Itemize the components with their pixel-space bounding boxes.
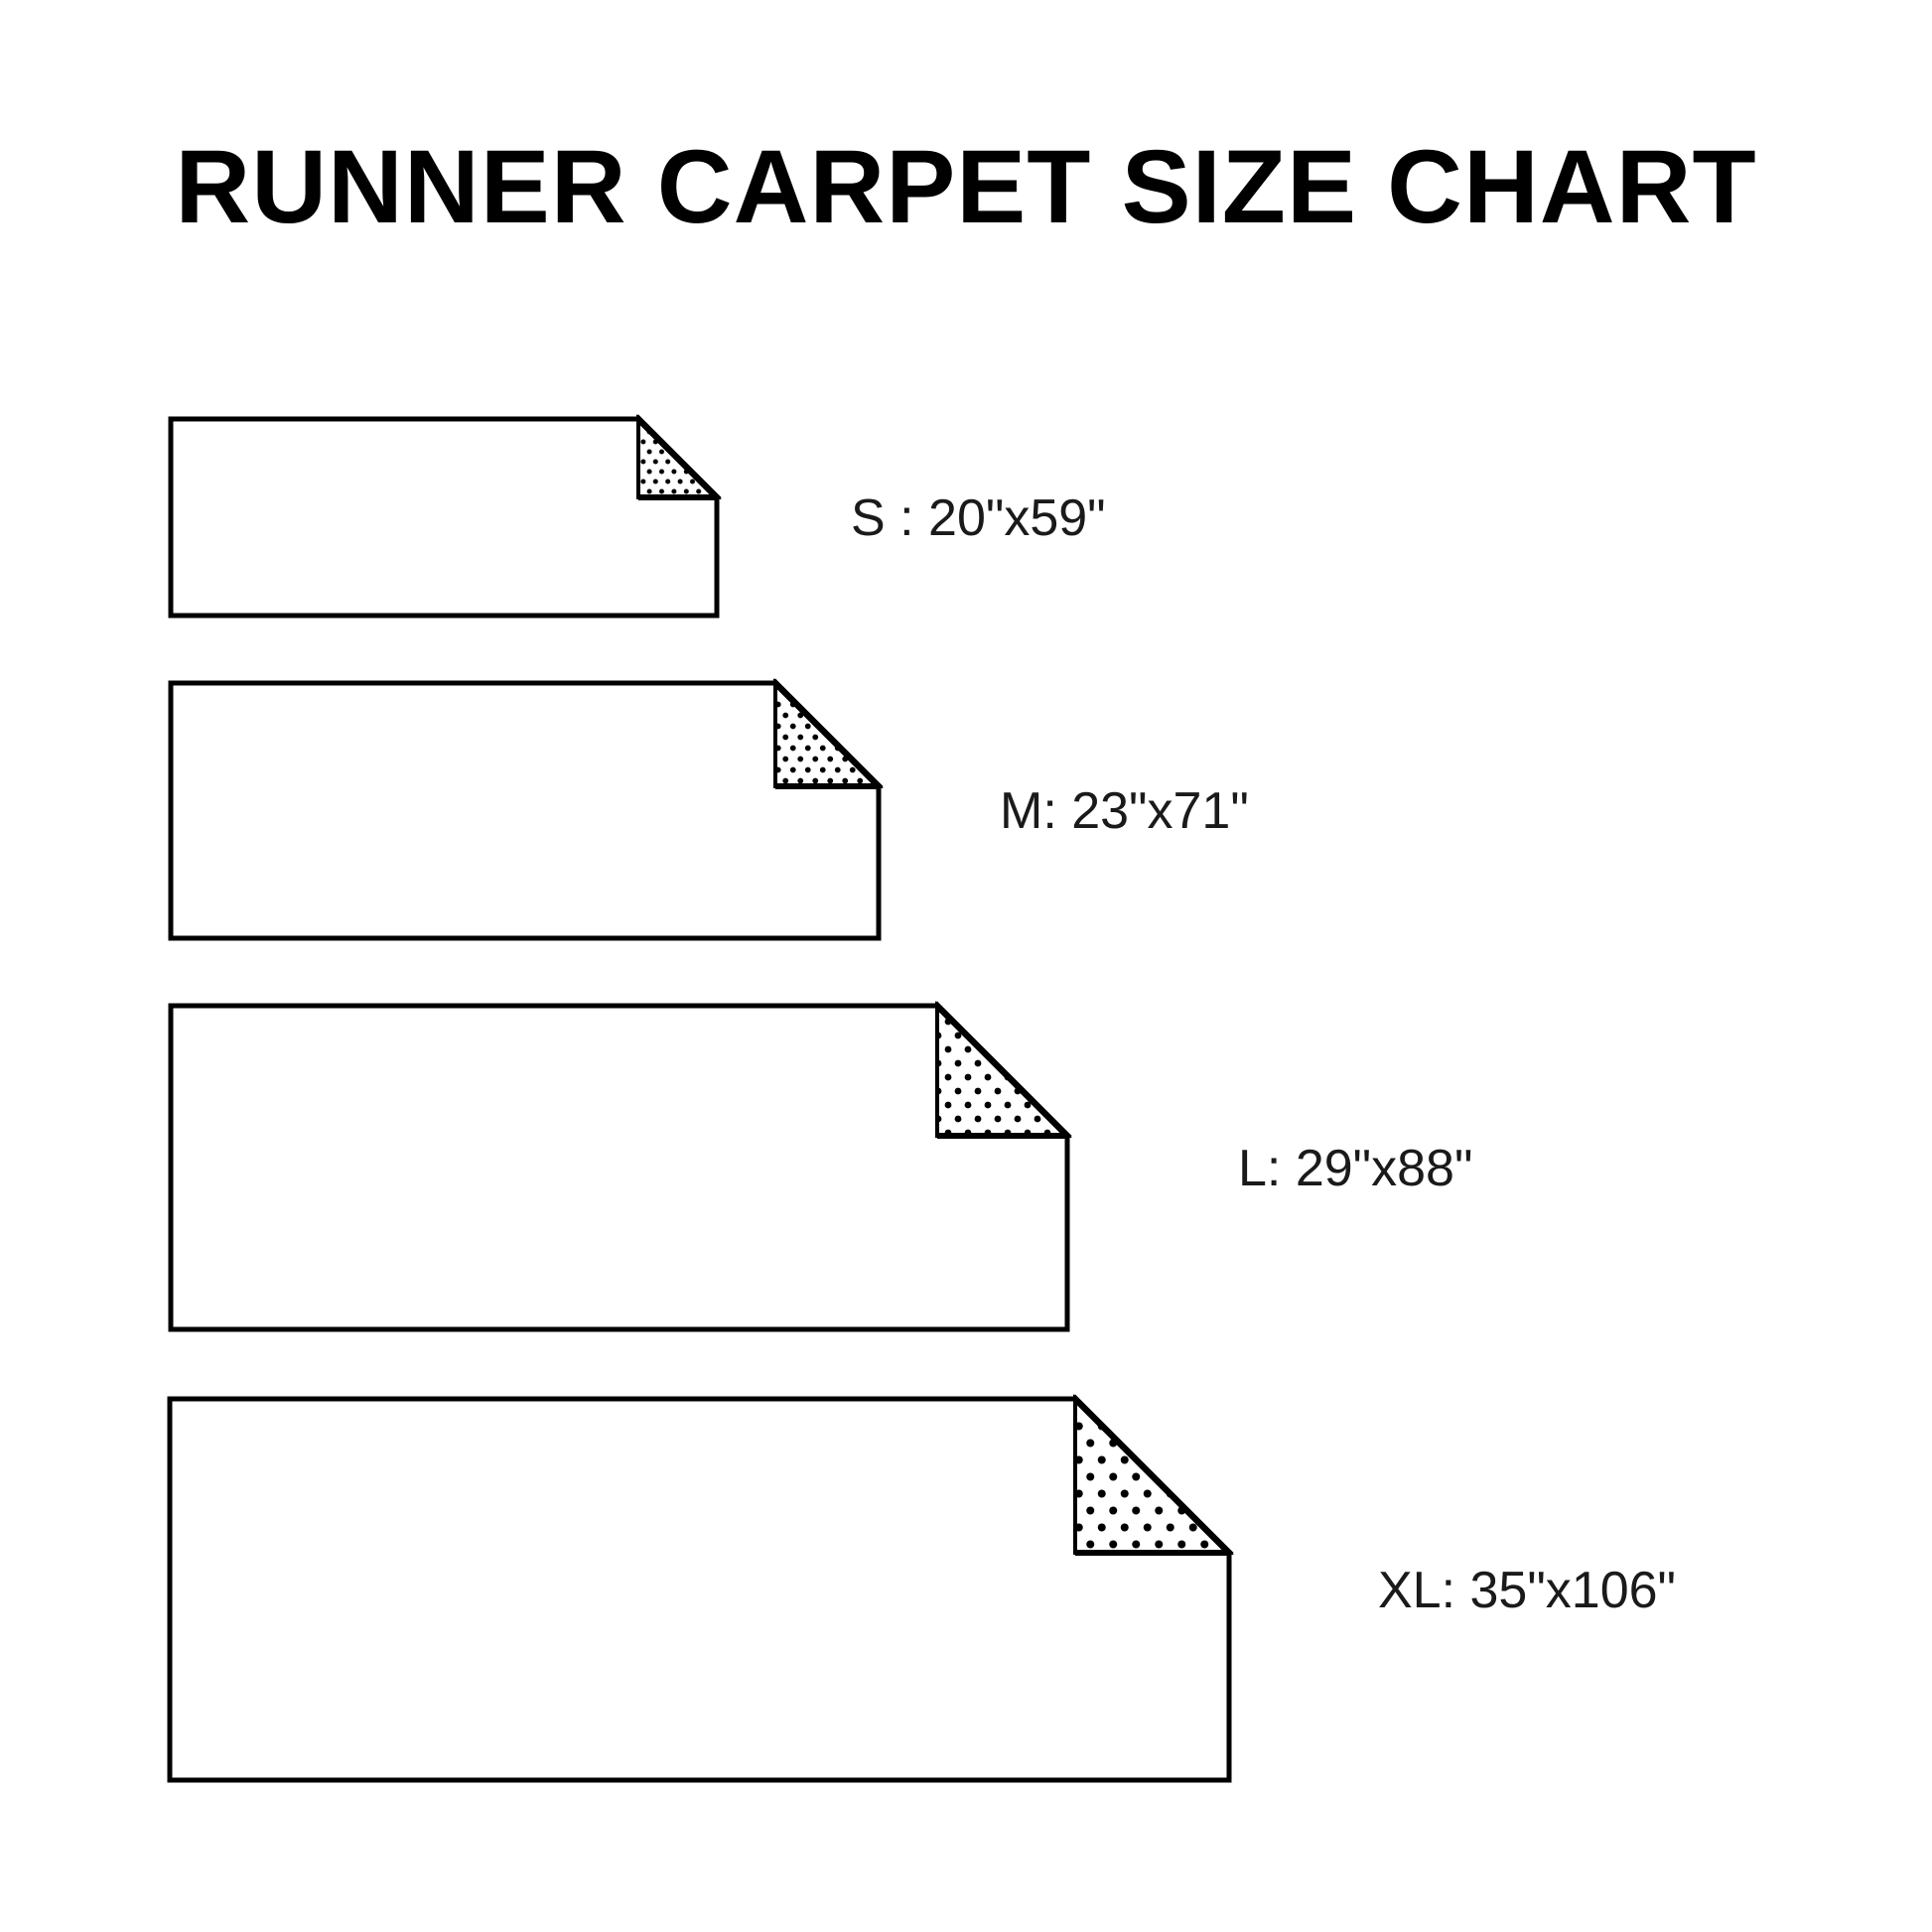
carpet-layer: S : 20"x59"M: 23"x71"L: 29"x88"XL: 35"x1… xyxy=(170,419,1676,1780)
carpet-size-label-s: S : 20"x59" xyxy=(851,489,1106,547)
carpet-xl: XL: 35"x106" xyxy=(170,1399,1676,1780)
carpet-size-diagram: S : 20"x59"M: 23"x71"L: 29"x88"XL: 35"x1… xyxy=(0,0,1932,1932)
carpet-m: M: 23"x71" xyxy=(171,683,1249,938)
carpet-sheet xyxy=(171,1006,1067,1329)
carpet-sheet xyxy=(171,419,717,616)
runner-carpet-size-chart-page: RUNNER CARPET SIZE CHART S : 20"x59"M: 2… xyxy=(0,0,1932,1932)
carpet-size-label-l: L: 29"x88" xyxy=(1238,1140,1472,1197)
carpet-size-label-xl: XL: 35"x106" xyxy=(1378,1562,1676,1619)
carpet-s: S : 20"x59" xyxy=(171,419,1106,616)
carpet-sheet xyxy=(170,1399,1229,1780)
carpet-sheet xyxy=(171,683,879,938)
carpet-l: L: 29"x88" xyxy=(171,1006,1472,1329)
carpet-size-label-m: M: 23"x71" xyxy=(1000,782,1249,840)
